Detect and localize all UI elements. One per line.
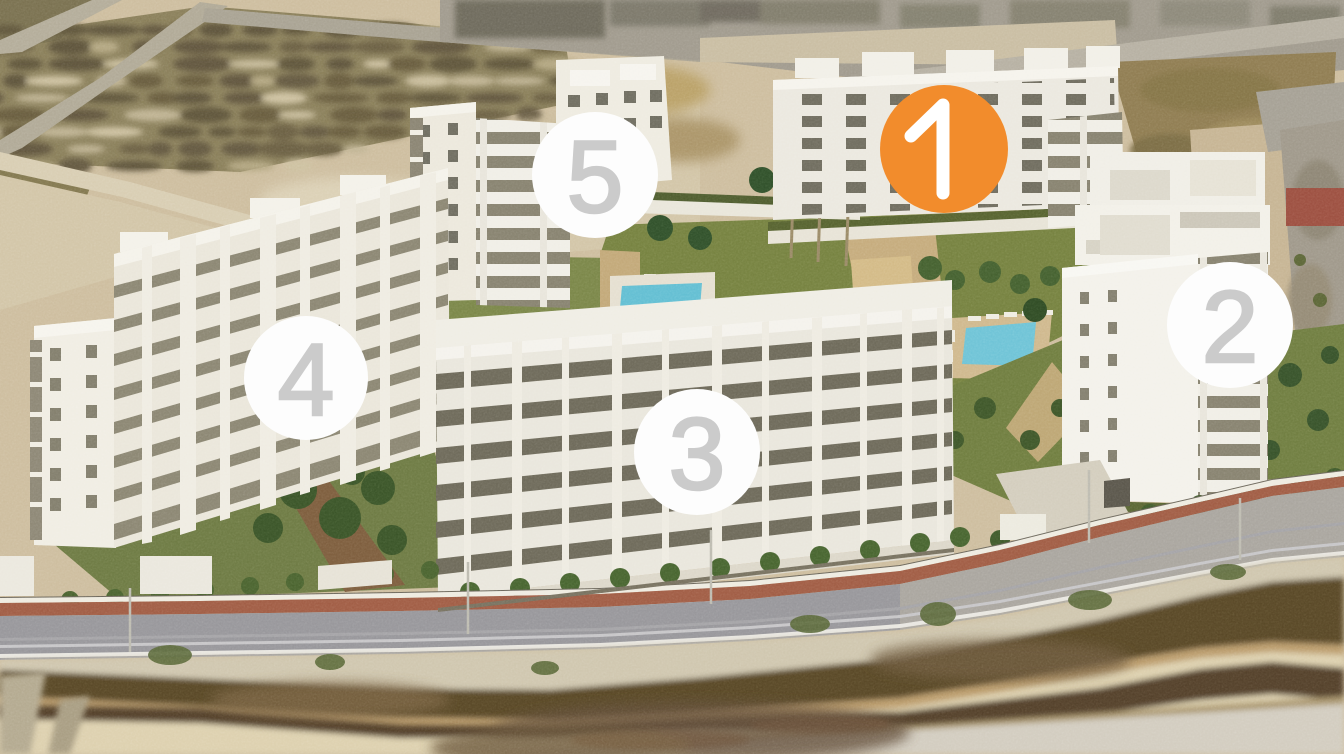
- svg-text:2: 2: [1202, 270, 1259, 384]
- svg-text:5: 5: [567, 120, 624, 234]
- svg-text:4: 4: [278, 323, 335, 437]
- svg-text:3: 3: [669, 397, 726, 511]
